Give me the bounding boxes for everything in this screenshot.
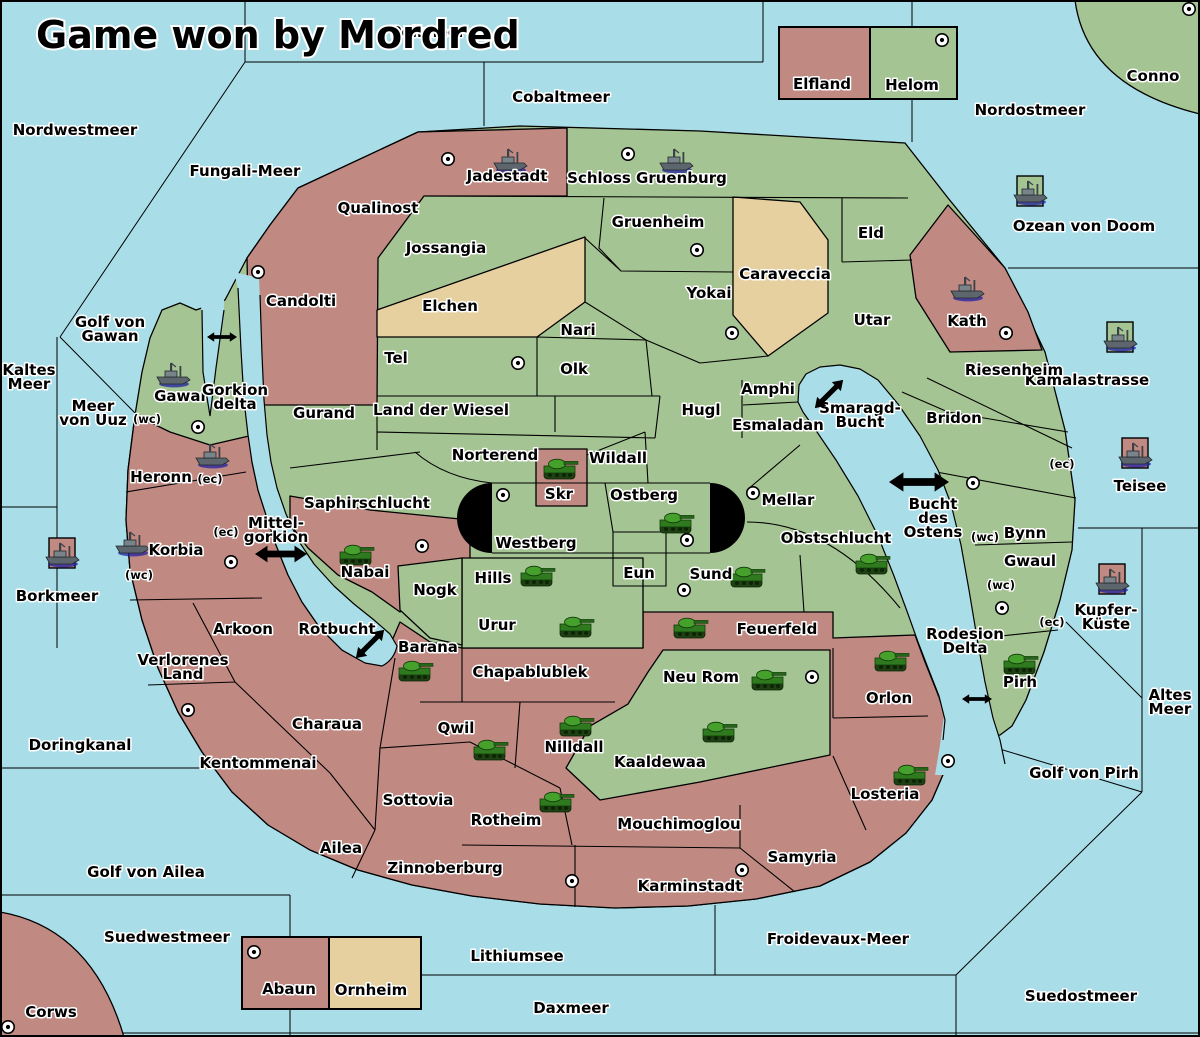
tank-unit-icon[interactable]: [1004, 654, 1038, 674]
territory-label[interactable]: Caraveccia: [739, 265, 831, 283]
territory-label[interactable]: Gurand: [293, 404, 355, 422]
city-icon: [681, 534, 693, 546]
coast-marker: (ec): [213, 525, 238, 539]
territory-label[interactable]: Gwaul: [1004, 552, 1056, 570]
tank-unit-icon[interactable]: [474, 740, 508, 760]
sea-label: Mittel-gorkion: [244, 514, 309, 546]
tank-unit-icon[interactable]: [399, 661, 433, 681]
territory-label[interactable]: Utar: [854, 311, 891, 329]
territory-label[interactable]: Mouchimoglou: [617, 815, 740, 833]
city-icon: [192, 421, 204, 433]
territory-label[interactable]: Schloss Gruenburg: [567, 169, 727, 187]
tank-unit-icon[interactable]: [752, 670, 786, 690]
sea-label: Borkmeer: [16, 587, 99, 605]
tank-unit-icon[interactable]: [703, 722, 737, 742]
territory-label[interactable]: Olk: [560, 360, 589, 378]
city-icon: [726, 327, 738, 339]
territory-label[interactable]: Elchen: [422, 297, 478, 315]
territory-label[interactable]: Rotheim: [471, 811, 542, 829]
territory-label[interactable]: Neu Rom: [663, 668, 739, 686]
game-map-screen: NordwestmeerFungali-MeerPollmeerCobaltme…: [0, 0, 1200, 1037]
city-icon: [252, 266, 264, 278]
territory-label[interactable]: Karminstadt: [638, 877, 743, 895]
sea-label: AltesMeer: [1148, 686, 1191, 718]
territory-label[interactable]: Ornheim: [335, 981, 407, 999]
territory-label[interactable]: Nabai: [341, 563, 390, 581]
coast-marker: (ec): [1049, 457, 1074, 471]
territory-label[interactable]: Heronn: [130, 468, 192, 486]
sea-label: Golf von Ailea: [87, 863, 205, 881]
tank-unit-icon[interactable]: [544, 459, 578, 479]
territory-label[interactable]: Orlon: [866, 689, 912, 707]
territory-label[interactable]: Chapablublek: [472, 663, 588, 681]
territory-label[interactable]: Hills: [475, 569, 512, 587]
sea-label: Golf von Pirh: [1029, 764, 1139, 782]
territory-label[interactable]: Kaaldewaa: [614, 753, 706, 771]
tank-unit-icon[interactable]: [856, 554, 890, 574]
territory-label[interactable]: Pirh: [1003, 673, 1037, 691]
sea-label: Nordostmeer: [975, 101, 1086, 119]
sea-label: Ozean von Doom: [1013, 217, 1155, 235]
territory-label[interactable]: Nari: [560, 321, 595, 339]
sea-label: Doringkanal: [29, 736, 132, 754]
territory-label[interactable]: Jadestadt: [466, 167, 548, 185]
territory-label[interactable]: Korbia: [148, 541, 203, 559]
territory-label[interactable]: Saphirschlucht: [304, 494, 430, 512]
territory-label[interactable]: Mellar: [762, 491, 816, 509]
territory-label[interactable]: Zinnoberburg: [387, 859, 503, 877]
territory-label[interactable]: Wildall: [589, 449, 647, 467]
territory-label[interactable]: Elfland: [793, 75, 851, 93]
tank-unit-icon[interactable]: [660, 513, 694, 533]
sea-label: Rotbucht: [298, 620, 375, 638]
sea-label: Lithiumsee: [470, 947, 563, 965]
tank-unit-icon[interactable]: [674, 618, 708, 638]
city-icon: [182, 704, 194, 716]
territory-label[interactable]: Yokai: [685, 284, 731, 302]
city-icon: [416, 540, 428, 552]
territory-label[interactable]: Riesenheim: [965, 361, 1063, 379]
territory-label[interactable]: Obstschlucht: [781, 529, 892, 547]
territory-label[interactable]: Eun: [623, 564, 655, 582]
city-icon: [678, 584, 690, 596]
city-icon: [225, 556, 237, 568]
territory-label[interactable]: Corws: [25, 1003, 77, 1021]
city-icon: [806, 671, 818, 683]
sea-label: KaltesMeer: [2, 361, 55, 393]
territory-label[interactable]: Candolti: [266, 292, 336, 310]
sea-label: Golf vonGawan: [75, 313, 145, 345]
territory-label[interactable]: Urur: [478, 616, 516, 634]
game-result-title: Game won by Mordred: [36, 13, 520, 57]
territory-label[interactable]: Feuerfeld: [737, 620, 818, 638]
city-icon: [996, 602, 1008, 614]
territory-label[interactable]: Ailea: [320, 839, 362, 857]
city-icon: [942, 755, 954, 767]
sea-label: Cobaltmeer: [512, 88, 610, 106]
coast-marker: (wc): [971, 530, 999, 544]
coast-marker: (wc): [987, 578, 1015, 592]
territory-label[interactable]: Qualinost: [338, 199, 419, 217]
city-icon: [747, 487, 759, 499]
tank-unit-icon[interactable]: [894, 765, 928, 785]
city-icon: [736, 864, 748, 876]
territory-label[interactable]: Bynn: [1004, 524, 1047, 542]
territory-label[interactable]: Gawar: [154, 387, 208, 405]
territory-label[interactable]: Skr: [545, 485, 574, 503]
sea-label: Froidevaux-Meer: [767, 930, 910, 948]
territory-label[interactable]: Arkoon: [213, 620, 273, 638]
tank-unit-icon[interactable]: [731, 567, 765, 587]
tank-unit-icon[interactable]: [521, 566, 555, 586]
city-icon: [2, 1021, 14, 1033]
city-icon: [936, 34, 948, 46]
territory-label[interactable]: Kentommenai: [199, 754, 316, 772]
territory-label[interactable]: Land der Wiesel: [373, 401, 509, 419]
coast-marker: (wc): [133, 412, 161, 426]
sea-label: Daxmeer: [533, 999, 609, 1017]
territory-label[interactable]: Barana: [398, 638, 458, 656]
territory-label[interactable]: Westberg: [495, 534, 576, 552]
city-icon: [967, 477, 979, 489]
territory-label[interactable]: Qwil: [438, 719, 475, 737]
territory-label[interactable]: Nilldall: [544, 738, 603, 756]
sea-label: Fungali-Meer: [190, 162, 301, 180]
territory-label[interactable]: Ostberg: [610, 486, 678, 504]
city-icon: [566, 875, 578, 887]
tank-unit-icon[interactable]: [875, 651, 909, 671]
sea-label: Suedostmeer: [1025, 987, 1138, 1005]
territory-label[interactable]: Hugl: [681, 401, 720, 419]
territory-label[interactable]: Abaun: [262, 980, 316, 998]
city-icon: [1183, 3, 1195, 15]
game-map[interactable]: NordwestmeerFungali-MeerPollmeerCobaltme…: [0, 0, 1200, 1037]
territory-label[interactable]: Norterend: [452, 446, 539, 464]
territory-label[interactable]: Esmaladan: [732, 416, 824, 434]
territory-label[interactable]: Sund: [690, 565, 733, 583]
territory-label[interactable]: Gruenheim: [612, 213, 705, 231]
coast-marker: (ec): [1039, 615, 1064, 629]
coast-marker: (ec): [197, 472, 222, 486]
territory-label[interactable]: Sottovia: [383, 791, 454, 809]
territory-label[interactable]: Bridon: [926, 409, 982, 427]
territory-label[interactable]: Conno: [1127, 67, 1180, 85]
sea-label: Teisee: [1114, 477, 1167, 495]
sea-label: Suedwestmeer: [104, 928, 230, 946]
territory-label[interactable]: Helom: [885, 76, 939, 94]
territory-label[interactable]: Samyria: [768, 848, 837, 866]
city-icon: [622, 148, 634, 160]
city-icon: [497, 489, 509, 501]
territory-label[interactable]: Losteria: [851, 785, 920, 803]
city-icon: [1000, 327, 1012, 339]
tank-unit-icon[interactable]: [560, 617, 594, 637]
territory-label[interactable]: Charaua: [292, 715, 362, 733]
city-icon: [512, 357, 524, 369]
sea-label: Kupfer-Küste: [1074, 601, 1137, 633]
city-icon: [691, 244, 703, 256]
territory-label[interactable]: Tel: [384, 349, 408, 367]
territory-label[interactable]: Jossangia: [405, 239, 487, 257]
tank-unit-icon[interactable]: [540, 792, 574, 812]
territory-label[interactable]: Kath: [947, 312, 987, 330]
coast-marker: (wc): [125, 568, 153, 582]
territory-label[interactable]: Amphi: [741, 380, 795, 398]
sea-label: Nordwestmeer: [13, 121, 138, 139]
tank-unit-icon[interactable]: [560, 716, 594, 736]
territory-label[interactable]: Nogk: [413, 581, 458, 599]
territory-label[interactable]: Eld: [858, 224, 884, 242]
city-icon: [442, 153, 454, 165]
city-icon: [248, 946, 260, 958]
